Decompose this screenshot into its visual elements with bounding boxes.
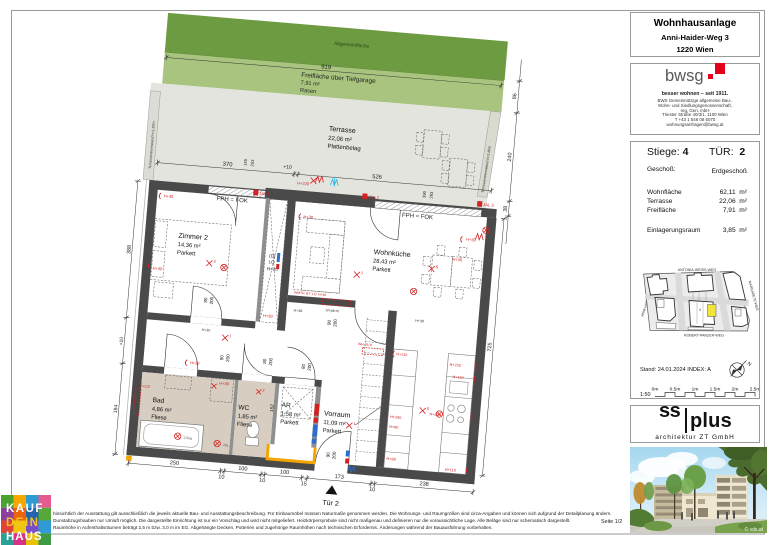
svg-text:80: 80: [301, 363, 306, 369]
svg-text:1: 1: [353, 421, 356, 426]
svg-text:200: 200: [307, 363, 313, 371]
svg-text:H+220: H+220: [140, 384, 150, 389]
svg-text:H+30: H+30: [219, 381, 230, 387]
svg-text:11,09 m²: 11,09 m²: [323, 420, 346, 428]
svg-text:Parkett: Parkett: [177, 250, 196, 258]
svg-text:1,58 m²: 1,58 m²: [281, 411, 301, 419]
svg-text:Parkett: Parkett: [280, 419, 299, 427]
svg-text:H+30: H+30: [318, 292, 327, 297]
svg-text:3: 3: [213, 259, 216, 264]
svg-text:152: 152: [269, 404, 275, 412]
svg-text:JAL 3: JAL 3: [483, 202, 495, 208]
svg-text:LO: LO: [312, 292, 317, 296]
svg-text:10: 10: [218, 474, 225, 481]
svg-text:TR: TR: [300, 291, 305, 295]
svg-text:100: 100: [280, 469, 290, 476]
svg-text:194: 194: [113, 404, 120, 413]
svg-text:200: 200: [332, 319, 338, 327]
svg-text:H+220: H+220: [297, 180, 310, 186]
svg-text:200: 200: [209, 296, 215, 304]
svg-text:173: 173: [334, 474, 344, 481]
svg-text:Parkett: Parkett: [372, 266, 391, 274]
svg-text:+10: +10: [283, 164, 292, 171]
svg-text:FPH = FOK: FPH = FOK: [402, 213, 434, 222]
svg-text:200: 200: [331, 451, 337, 459]
svg-text:JAL 1: JAL 1: [259, 191, 271, 197]
svg-text:© vdx.at: © vdx.at: [744, 526, 763, 533]
svg-text:80: 80: [262, 358, 267, 364]
svg-text:JAL 2: JAL 2: [368, 194, 380, 200]
svg-text:25L: 25L: [223, 443, 229, 447]
svg-text:Vorraum: Vorraum: [324, 410, 351, 419]
svg-text:388: 388: [126, 245, 133, 254]
svg-text:145: 145: [243, 158, 249, 166]
svg-text:240: 240: [507, 152, 514, 161]
svg-text:H+30: H+30: [452, 257, 463, 263]
svg-text:WH-05-R: WH-05-R: [358, 342, 373, 347]
svg-text:263: 263: [428, 191, 434, 199]
svg-text:80: 80: [219, 354, 224, 360]
svg-text:10: 10: [369, 487, 376, 494]
svg-text:H+30: H+30: [303, 214, 314, 220]
svg-text:250: 250: [169, 460, 179, 467]
svg-text:725: 725: [487, 342, 494, 351]
svg-text:KAUF: KAUF: [6, 503, 44, 515]
svg-text:919: 919: [321, 64, 332, 71]
svg-text:H+30: H+30: [263, 313, 274, 319]
svg-text:H+90: H+90: [389, 425, 398, 430]
svg-text:1: 1: [229, 333, 232, 338]
svg-text:(D): (D): [269, 253, 276, 259]
svg-text:H+88: H+88: [386, 457, 395, 462]
svg-text:H+38: H+38: [293, 308, 302, 313]
svg-text:BT: BT: [306, 291, 311, 295]
svg-text:AR: AR: [281, 402, 291, 410]
svg-text:WC: WC: [238, 404, 250, 412]
svg-text:LO: LO: [268, 259, 275, 265]
svg-text:Zimmer 2: Zimmer 2: [178, 233, 208, 242]
svg-text:H+30: H+30: [201, 328, 210, 333]
svg-text:5: 5: [427, 406, 430, 411]
svg-text:100: 100: [238, 466, 248, 473]
svg-text:253: 253: [250, 159, 256, 167]
svg-text:200: 200: [225, 354, 231, 362]
svg-text:Bad: Bad: [152, 397, 165, 405]
svg-text:+10: +10: [119, 337, 126, 346]
svg-text:28,43 m²: 28,43 m²: [373, 258, 396, 266]
svg-text:38: 38: [503, 206, 509, 212]
svg-text:Tür 2: Tür 2: [322, 500, 339, 508]
svg-text:2,5kg: 2,5kg: [183, 436, 192, 441]
svg-text:H+30: H+30: [190, 360, 201, 366]
svg-text:10: 10: [259, 478, 266, 485]
svg-text:1: 1: [361, 270, 364, 275]
svg-text:H+30: H+30: [466, 237, 477, 243]
svg-text:90: 90: [325, 452, 330, 458]
svg-text:14,36 m²: 14,36 m²: [177, 242, 200, 250]
svg-text:80: 80: [203, 297, 208, 303]
svg-text:86: 86: [512, 93, 518, 99]
svg-text:HAUS: HAUS: [6, 531, 43, 543]
svg-text:80: 80: [327, 319, 332, 325]
svg-text:238: 238: [419, 481, 429, 488]
svg-text:370: 370: [222, 162, 232, 169]
svg-text:526: 526: [372, 174, 382, 181]
svg-text:DEIN: DEIN: [6, 517, 39, 529]
svg-text:15: 15: [300, 481, 307, 488]
svg-text:6: 6: [436, 264, 439, 269]
svg-text:390: 390: [421, 190, 427, 198]
svg-text:Parkett: Parkett: [322, 428, 341, 436]
svg-text:H+38: H+38: [415, 319, 424, 324]
svg-text:sh-pb-m: sh-pb-m: [326, 308, 339, 313]
svg-text:200: 200: [268, 357, 274, 365]
svg-text:H+30: H+30: [152, 266, 163, 272]
svg-text:H+30: H+30: [164, 193, 175, 199]
svg-text:Wohnküche: Wohnküche: [373, 249, 410, 259]
